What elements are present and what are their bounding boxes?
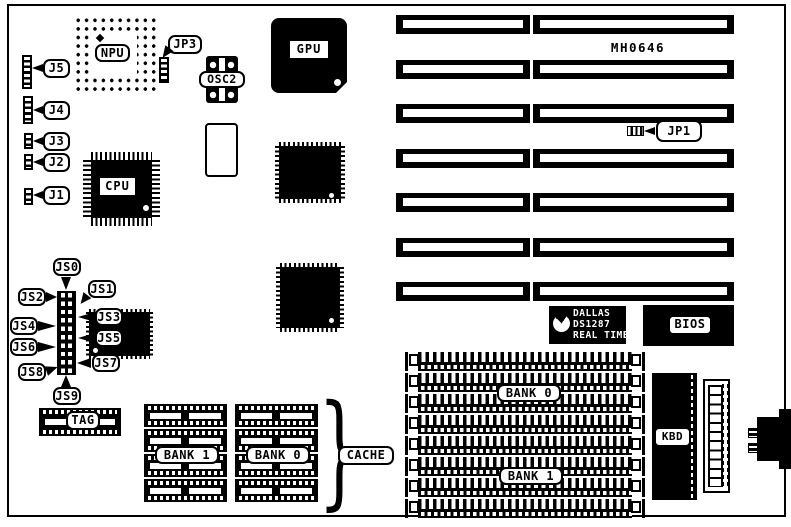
callout-js2: JS2 [18, 288, 46, 306]
simm-bank0-label: BANK 0 [497, 384, 561, 402]
cpu-chip: CPU [83, 152, 160, 226]
connector-j2-block [24, 154, 33, 170]
jumper-jp3-block [159, 57, 169, 83]
isa-slot [396, 60, 530, 79]
callout-osc2: OSC2 [199, 71, 245, 88]
simm-socket [405, 415, 645, 434]
callout-js1: JS1 [88, 280, 116, 298]
jumper-jp1-block [627, 126, 644, 136]
isa-slot [533, 193, 734, 212]
cache-chip [235, 479, 318, 502]
isa-slot [396, 282, 530, 301]
connector-j4-block [23, 96, 33, 124]
dallas-rtc-chip: DALLAS DS1287 REAL TIME [549, 306, 626, 344]
arrow-icon [77, 358, 91, 368]
arrow-icon [46, 292, 57, 302]
callout-js9: JS9 [53, 387, 81, 405]
cache-chip [144, 404, 227, 427]
qfp-chip-lower [276, 263, 344, 332]
simm-socket [405, 352, 645, 371]
arrow-icon [78, 312, 95, 322]
isa-slot [396, 104, 530, 123]
qfp-chip-top [275, 142, 345, 203]
arrow-icon [61, 277, 71, 290]
arrow-icon [38, 342, 56, 352]
dallas-type: REAL TIME [573, 330, 629, 341]
callout-jp1: JP1 [656, 120, 702, 142]
din-pin-block [748, 443, 758, 453]
motherboard-diagram: NPU J5 J4 J3 J2 J1 JP3 OSC2 CPU GPU [0, 0, 791, 527]
qfp-pins [150, 312, 153, 356]
kbd-controller-chip: KBD [652, 373, 697, 500]
simm-bank1-label: BANK 1 [499, 467, 563, 485]
isa-slot [396, 149, 530, 168]
cpu-pins [83, 160, 91, 218]
arrow-icon [33, 158, 43, 166]
cache-bank0-label: BANK 0 [246, 446, 310, 464]
connector-j3-block [24, 133, 33, 149]
qfp-pins [340, 267, 344, 328]
cache-label: CACHE [338, 446, 394, 465]
tag-label: TAG [66, 411, 100, 430]
gpu-pin1-dot [334, 79, 341, 86]
dallas-part: DS1287 [573, 319, 629, 330]
isa-slot [533, 149, 734, 168]
qfp-pin1-dot [93, 348, 98, 353]
board-part-number: MH0646 [603, 40, 673, 55]
cpu-pins [91, 152, 152, 160]
cache-bank1-label: BANK 1 [155, 446, 219, 464]
isa-slot [396, 193, 530, 212]
isa-slot [533, 104, 734, 123]
arrow-icon [78, 333, 95, 343]
cpu-pins [152, 160, 160, 218]
cpu-pin1-dot [143, 205, 149, 211]
qfp-pins [280, 328, 340, 332]
callout-js5: JS5 [95, 329, 123, 347]
isa-slot [533, 238, 734, 257]
arrow-icon [38, 321, 56, 331]
arrow-icon [33, 137, 43, 145]
qfp-pin1-dot [329, 193, 334, 198]
simm-socket [405, 436, 645, 455]
callout-j4: J4 [43, 101, 70, 120]
arrow-icon [61, 375, 71, 387]
callout-j1: J1 [43, 186, 70, 205]
dallas-text: DALLAS DS1287 REAL TIME [573, 308, 629, 341]
arrow-icon [33, 106, 43, 114]
arrow-icon [32, 64, 43, 72]
callout-j3: J3 [43, 132, 70, 151]
npu-socket: NPU [72, 14, 156, 93]
isa-slot [533, 282, 734, 301]
callout-j5: J5 [43, 59, 70, 78]
isa-slot [533, 15, 734, 34]
npu-label: NPU [95, 44, 130, 62]
callout-js3: JS3 [95, 308, 123, 326]
qfp-pins [279, 199, 341, 203]
din-keyboard-connector [757, 417, 779, 461]
dallas-clock-icon [553, 315, 570, 332]
gpu-chip: GPU [271, 18, 347, 93]
cpu-label: CPU [100, 178, 135, 195]
callout-js6: JS6 [10, 338, 38, 356]
bios-chip: BIOS [643, 305, 734, 346]
isa-slot [533, 60, 734, 79]
din-pin-block [748, 428, 758, 438]
isa-slot [396, 15, 530, 34]
arrow-icon [33, 191, 43, 199]
qfp-pins [341, 146, 345, 199]
cache-chip [144, 479, 227, 502]
simm-socket [405, 499, 645, 518]
callout-js8: JS8 [18, 363, 46, 381]
callout-j2: J2 [43, 153, 70, 172]
isa-slot [396, 238, 530, 257]
din-keyboard-connector [779, 409, 791, 469]
keyboard-pin-header [703, 379, 730, 493]
bios-label: BIOS [669, 316, 711, 334]
qfp-pin1-dot [329, 318, 334, 323]
js-jumper-column [57, 291, 76, 375]
dallas-brand: DALLAS [573, 308, 629, 319]
callout-js0: JS0 [53, 258, 81, 276]
cpu-pins [91, 218, 152, 226]
crystal [205, 123, 238, 177]
callout-js4: JS4 [10, 317, 38, 335]
gpu-label: GPU [290, 41, 328, 58]
connector-j5-block [22, 55, 32, 89]
connector-j1-block [24, 188, 33, 205]
callout-js7: JS7 [92, 354, 120, 372]
qfp-body [279, 146, 341, 199]
kbd-label: KBD [655, 428, 690, 446]
cache-chip [235, 404, 318, 427]
arrow-icon [644, 127, 655, 135]
